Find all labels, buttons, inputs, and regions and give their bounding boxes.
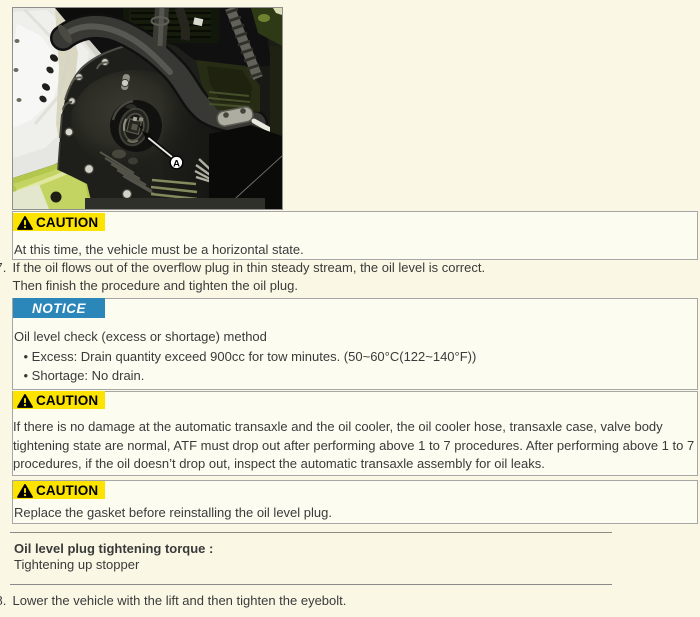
svg-text:A: A	[173, 159, 180, 170]
